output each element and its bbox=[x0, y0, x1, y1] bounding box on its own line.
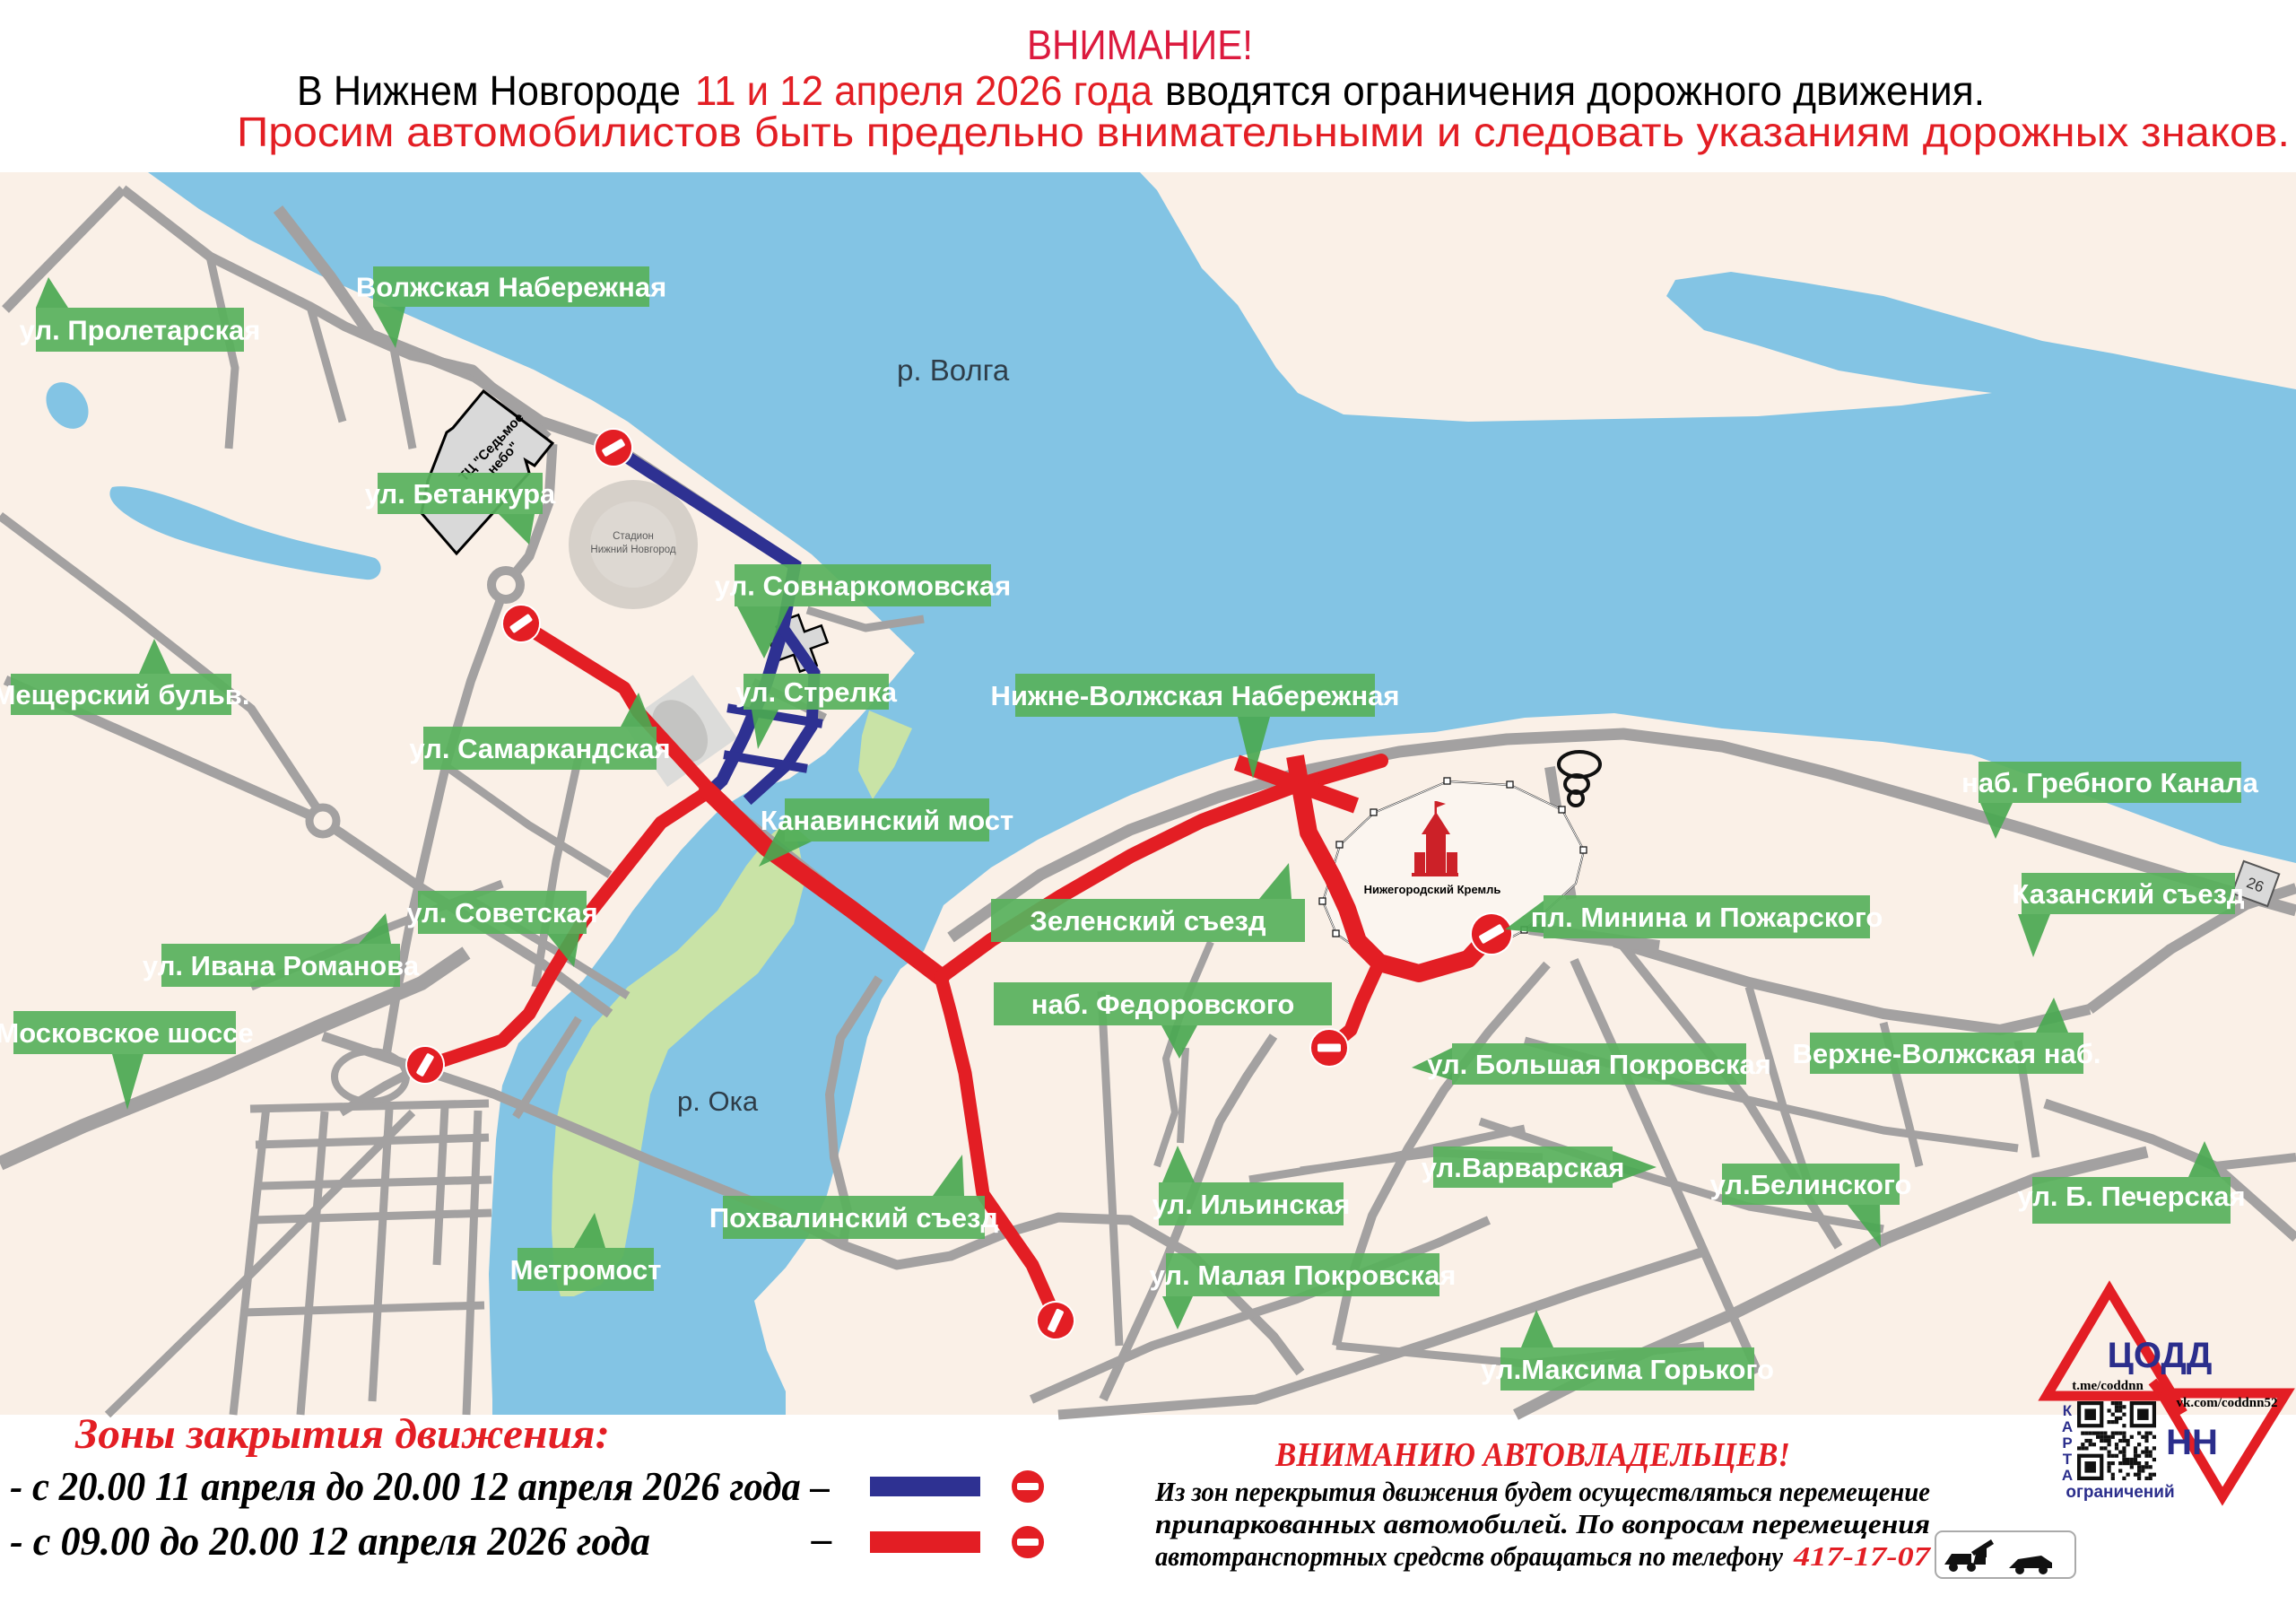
svg-text:А: А bbox=[2062, 1467, 2073, 1484]
svg-text:Волжская Набережная: Волжская Набережная bbox=[356, 272, 666, 303]
svg-text:вводятся ограничения дорожного: вводятся ограничения дорожного движения. bbox=[1165, 67, 1985, 114]
svg-text:наб. Гребного Канала: наб. Гребного Канала bbox=[1961, 767, 2259, 798]
svg-text:ул.Белинского: ул.Белинского bbox=[1710, 1169, 1912, 1200]
svg-text:Верхне-Волжская наб.: Верхне-Волжская наб. bbox=[1793, 1038, 2101, 1069]
svg-text:ул. Ильинская: ул. Ильинская bbox=[1152, 1189, 1351, 1220]
svg-text:ул.Максима Горького: ул.Максима Горького bbox=[1481, 1354, 1774, 1385]
svg-text:Нижегородский Кремль: Нижегородский Кремль bbox=[1364, 883, 1501, 896]
svg-text:11 и 12 апреля 2026 года: 11 и 12 апреля 2026 года bbox=[695, 67, 1152, 114]
svg-text:Канавинский мост: Канавинский мост bbox=[761, 805, 1013, 836]
svg-text:vk.com/coddnn52: vk.com/coddnn52 bbox=[2177, 1396, 2278, 1410]
svg-text:Казанский съезд: Казанский съезд bbox=[2012, 878, 2244, 910]
svg-text:Метромост: Метромост bbox=[510, 1254, 662, 1286]
svg-text:ул. Большая Покровская: ул. Большая Покровская bbox=[1427, 1049, 1771, 1080]
svg-text:- с 20.00 11 апреля до 20.00 1: - с 20.00 11 апреля до 20.00 12 апреля 2… bbox=[10, 1464, 830, 1509]
svg-text:ул. Самаркандская: ул. Самаркандская bbox=[409, 733, 670, 764]
svg-text:ВНИМАНИЮ АВТОВЛАДЕЛЬЦЕВ!: ВНИМАНИЮ АВТОВЛАДЕЛЬЦЕВ! bbox=[1274, 1436, 1790, 1474]
svg-text:наб. Федоровского: наб. Федоровского bbox=[1031, 989, 1295, 1020]
svg-text:Похвалинский съезд: Похвалинский съезд bbox=[709, 1202, 999, 1234]
svg-text:Мещерский бульв.: Мещерский бульв. bbox=[0, 679, 249, 711]
svg-text:ул. Пролетарская: ул. Пролетарская bbox=[20, 315, 261, 346]
svg-text:ЦОДД: ЦОДД bbox=[2108, 1336, 2213, 1375]
svg-text:Т: Т bbox=[2063, 1451, 2073, 1468]
svg-text:ВНИМАНИЕ!: ВНИМАНИЕ! bbox=[1027, 22, 1253, 68]
svg-text:ул.Варварская: ул.Варварская bbox=[1422, 1152, 1625, 1183]
svg-text:Из зон перекрытия движения буд: Из зон перекрытия движения будет осущест… bbox=[1154, 1476, 1930, 1507]
svg-text:Нижний Новгород: Нижний Новгород bbox=[590, 545, 676, 555]
svg-text:пл. Минина и Пожарского: пл. Минина и Пожарского bbox=[1531, 902, 1883, 933]
svg-text:Стадион: Стадион bbox=[613, 531, 654, 542]
svg-text:В Нижнем Новгороде: В Нижнем Новгороде bbox=[297, 67, 681, 114]
svg-text:- с 09.00 до 20.00 12 апреля 2: - с 09.00 до 20.00 12 апреля 2026 года bbox=[10, 1519, 650, 1564]
svg-text:Зоны закрытия движения:: Зоны закрытия движения: bbox=[74, 1410, 610, 1458]
svg-text:К: К bbox=[2063, 1402, 2073, 1419]
svg-text:автотранспортных средств обращ: автотранспортных средств обращаться по т… bbox=[1155, 1540, 1783, 1572]
svg-text:ул. Совнаркомовская: ул. Совнаркомовская bbox=[715, 571, 1012, 602]
svg-text:Нижне-Волжская Набережная: Нижне-Волжская Набережная bbox=[990, 680, 1399, 711]
svg-text:припаркованных автомобилей. По: припаркованных автомобилей. По вопросам … bbox=[1155, 1508, 1930, 1539]
svg-text:ограничений: ограничений bbox=[2066, 1483, 2174, 1502]
svg-text:ул. Бетанкура: ул. Бетанкура bbox=[365, 478, 556, 510]
svg-text:НН: НН bbox=[2166, 1423, 2218, 1462]
svg-text:417-17-07: 417-17-07 bbox=[1793, 1540, 1932, 1572]
svg-text:ул. Советская: ул. Советская bbox=[406, 897, 597, 929]
svg-text:ул. Ивана Романова: ул. Ивана Романова bbox=[143, 950, 420, 981]
svg-text:Просим автомобилистов быть пре: Просим автомобилистов быть предельно вни… bbox=[237, 109, 2290, 155]
svg-text:t.me/coddnn: t.me/coddnn bbox=[2072, 1379, 2144, 1393]
svg-text:ул. Стрелка: ул. Стрелка bbox=[735, 676, 898, 708]
svg-text:А: А bbox=[2062, 1418, 2073, 1435]
svg-text:р. Волга: р. Волга bbox=[897, 353, 1010, 387]
svg-text:–: – bbox=[811, 1516, 832, 1561]
svg-text:ул. Б. Печерская: ул. Б. Печерская bbox=[2017, 1181, 2245, 1212]
svg-text:Р: Р bbox=[2062, 1434, 2072, 1452]
svg-text:Зеленский съезд: Зеленский съезд bbox=[1030, 905, 1265, 937]
svg-text:ул. Малая Покровская: ул. Малая Покровская bbox=[1150, 1260, 1457, 1291]
svg-text:Московское шоссе: Московское шоссе bbox=[0, 1017, 254, 1049]
svg-text:р. Ока: р. Ока bbox=[677, 1086, 759, 1117]
